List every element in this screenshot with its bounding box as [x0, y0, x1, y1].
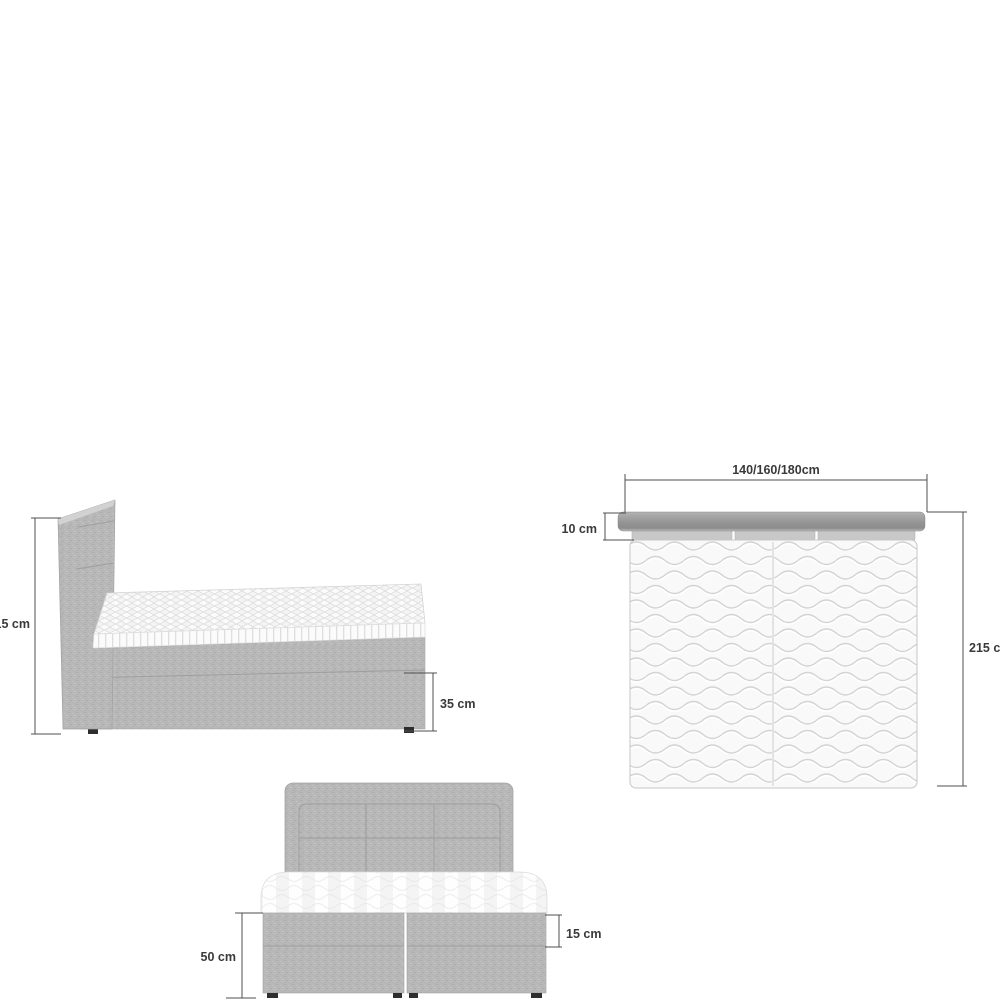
front-dim-upper-base: 15 cm — [545, 915, 601, 947]
front-base-left — [263, 913, 404, 993]
dim-label-lower-base: 35 cm — [440, 697, 475, 711]
side-foot-right — [404, 727, 414, 733]
dimension-line — [625, 474, 927, 512]
top-dim-length: 215 cm — [927, 512, 1000, 786]
dimension-line — [545, 915, 562, 947]
dim-label-headboard-depth: 10 cm — [562, 522, 597, 536]
front-feet — [267, 993, 542, 998]
dimension-line — [927, 512, 967, 786]
dim-label-width: 140/160/180cm — [732, 463, 820, 477]
front-dim-base-total: 50 cm — [201, 913, 263, 998]
side-dim-total-height: 115 cm — [0, 518, 61, 734]
front-headboard — [285, 783, 513, 883]
diagram-canvas: 115 cm 35 cm 140/160/180cm 10 cm — [0, 0, 1000, 1000]
top-headboard-strip — [618, 512, 925, 531]
top-dim-width: 140/160/180cm — [625, 463, 927, 512]
side-foot-left — [88, 729, 98, 734]
bed-dimension-drawing: 115 cm 35 cm 140/160/180cm 10 cm — [0, 0, 1000, 1000]
front-base-right — [407, 913, 546, 993]
dim-label-base-total: 50 cm — [201, 950, 236, 964]
front-mattress-quilt-overlay — [261, 872, 547, 913]
dim-label-total-height: 115 cm — [0, 617, 30, 631]
front-view: 50 cm 15 cm — [201, 783, 602, 998]
side-base-box — [80, 637, 425, 729]
dim-label-upper-base: 15 cm — [566, 927, 601, 941]
top-view: 140/160/180cm 10 cm 215 cm — [562, 463, 1000, 788]
dim-label-length: 215 cm — [969, 641, 1000, 655]
side-view: 115 cm 35 cm — [0, 500, 475, 734]
